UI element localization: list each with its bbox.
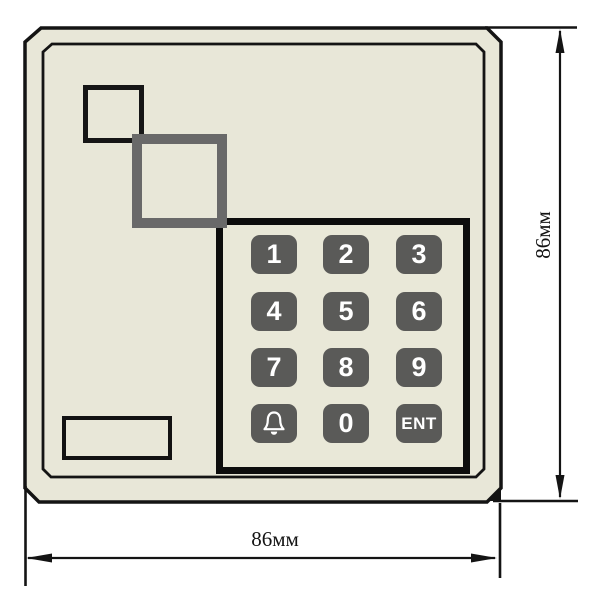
key-4-button: 4	[251, 292, 297, 331]
key-6-button: 6	[396, 292, 442, 331]
drawing-canvas: 1 2 3 4 5 6 7 8 9 0 ENT 86мм 86мм	[0, 0, 600, 600]
key-bell-button	[251, 404, 297, 443]
key-9-button: 9	[396, 348, 442, 387]
key-3-button: 3	[396, 235, 442, 274]
arrow-up-icon	[556, 29, 565, 53]
key-2-button: 2	[323, 235, 369, 274]
key-5-button: 5	[323, 292, 369, 331]
arrow-down-icon	[556, 475, 565, 499]
key-1-button: 1	[251, 235, 297, 274]
indicator-window	[62, 416, 172, 460]
keypad-panel: 1 2 3 4 5 6 7 8 9 0 ENT	[216, 218, 470, 474]
key-ent-button: ENT	[396, 404, 442, 443]
large-gray-square-outline	[132, 134, 227, 228]
height-dimension-label: 86мм	[531, 195, 553, 275]
key-7-button: 7	[251, 348, 297, 387]
key-0-button: 0	[323, 404, 369, 443]
arrow-left-icon	[26, 554, 52, 563]
bell-icon	[257, 409, 291, 439]
arrow-right-icon	[471, 554, 497, 563]
key-8-button: 8	[323, 348, 369, 387]
width-dimension-label: 86мм	[215, 527, 335, 552]
